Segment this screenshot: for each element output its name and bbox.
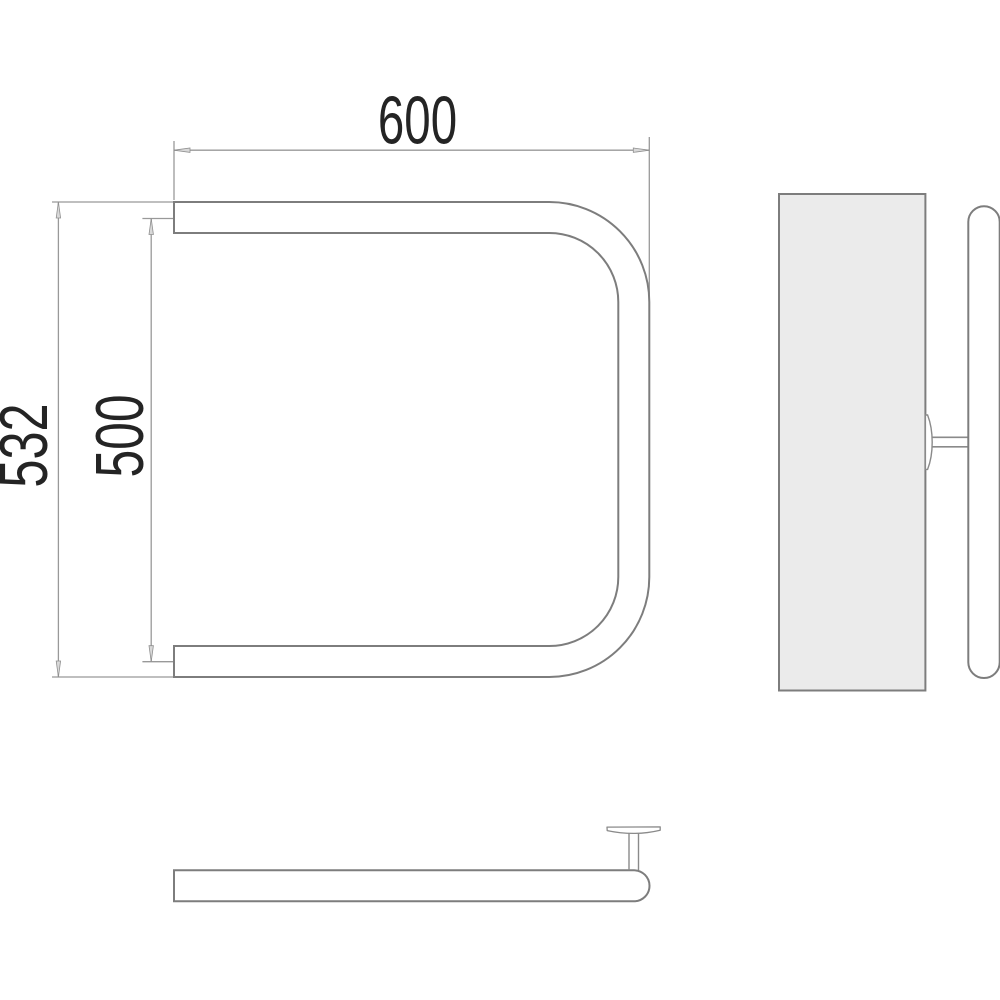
svg-text:532: 532 [0,403,62,487]
svg-text:500: 500 [81,394,157,477]
svg-text:600: 600 [378,83,457,158]
